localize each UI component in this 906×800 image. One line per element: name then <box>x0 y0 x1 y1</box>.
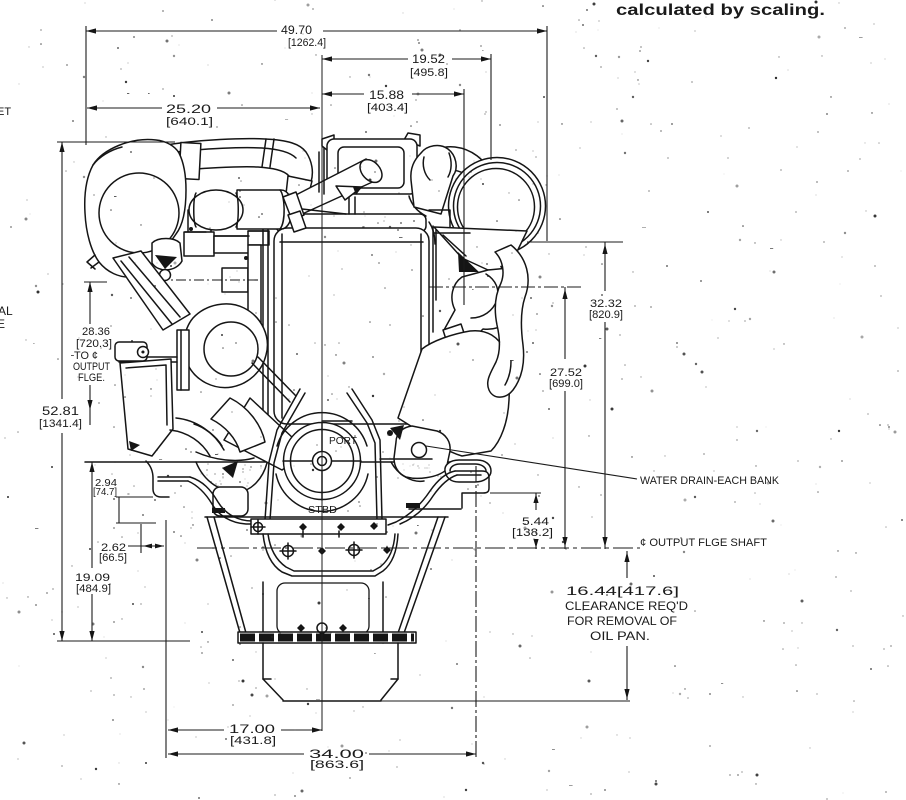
svg-text:STBD: STBD <box>308 505 337 516</box>
svg-text:calculated by scaling.: calculated by scaling. <box>616 2 825 19</box>
svg-text:[138.2]: [138.2] <box>512 527 553 539</box>
svg-text:28.36: 28.36 <box>82 326 110 338</box>
svg-text:[495.8]: [495.8] <box>410 67 448 79</box>
svg-text:FOR REMOVAL OF: FOR REMOVAL OF <box>567 614 677 628</box>
svg-text:[1341.4]: [1341.4] <box>39 418 82 430</box>
svg-text:49.70: 49.70 <box>281 23 312 37</box>
svg-text:[431.8]: [431.8] <box>230 735 276 747</box>
svg-text:[1262.4]: [1262.4] <box>288 37 326 49</box>
svg-text:[66.5]: [66.5] <box>99 552 127 564</box>
svg-text:CLEARANCE REQ'D: CLEARANCE REQ'D <box>565 599 688 613</box>
svg-text:WATER DRAIN-EACH BANK: WATER DRAIN-EACH BANK <box>640 475 780 487</box>
svg-text:OIL PAN.: OIL PAN. <box>590 629 650 643</box>
svg-text:15.88: 15.88 <box>369 88 404 102</box>
svg-text:E: E <box>0 317 5 331</box>
svg-text:[484.9]: [484.9] <box>76 583 111 595</box>
svg-text:[863.6]: [863.6] <box>310 759 364 771</box>
svg-text:[820.9]: [820.9] <box>589 309 623 321</box>
svg-text:25.20: 25.20 <box>166 102 211 116</box>
svg-text:[74.7]: [74.7] <box>93 487 117 498</box>
svg-text:¢ OUTPUT FLGE SHAFT: ¢ OUTPUT FLGE SHAFT <box>640 537 767 549</box>
svg-text:FLGE.: FLGE. <box>78 372 105 384</box>
svg-text:[699.0]: [699.0] <box>549 378 583 390</box>
svg-text:[720.3]: [720.3] <box>76 338 112 350</box>
svg-text:-AL: -AL <box>0 304 13 318</box>
svg-text:ET: ET <box>0 106 11 118</box>
svg-text:[640.1]: [640.1] <box>166 116 213 128</box>
svg-text:[403.4]: [403.4] <box>367 102 408 114</box>
svg-text:17.00: 17.00 <box>229 722 275 736</box>
svg-text:16.44[417.6]: 16.44[417.6] <box>566 584 679 598</box>
svg-text:52.81: 52.81 <box>42 404 79 418</box>
svg-text:PORT: PORT <box>329 436 357 447</box>
